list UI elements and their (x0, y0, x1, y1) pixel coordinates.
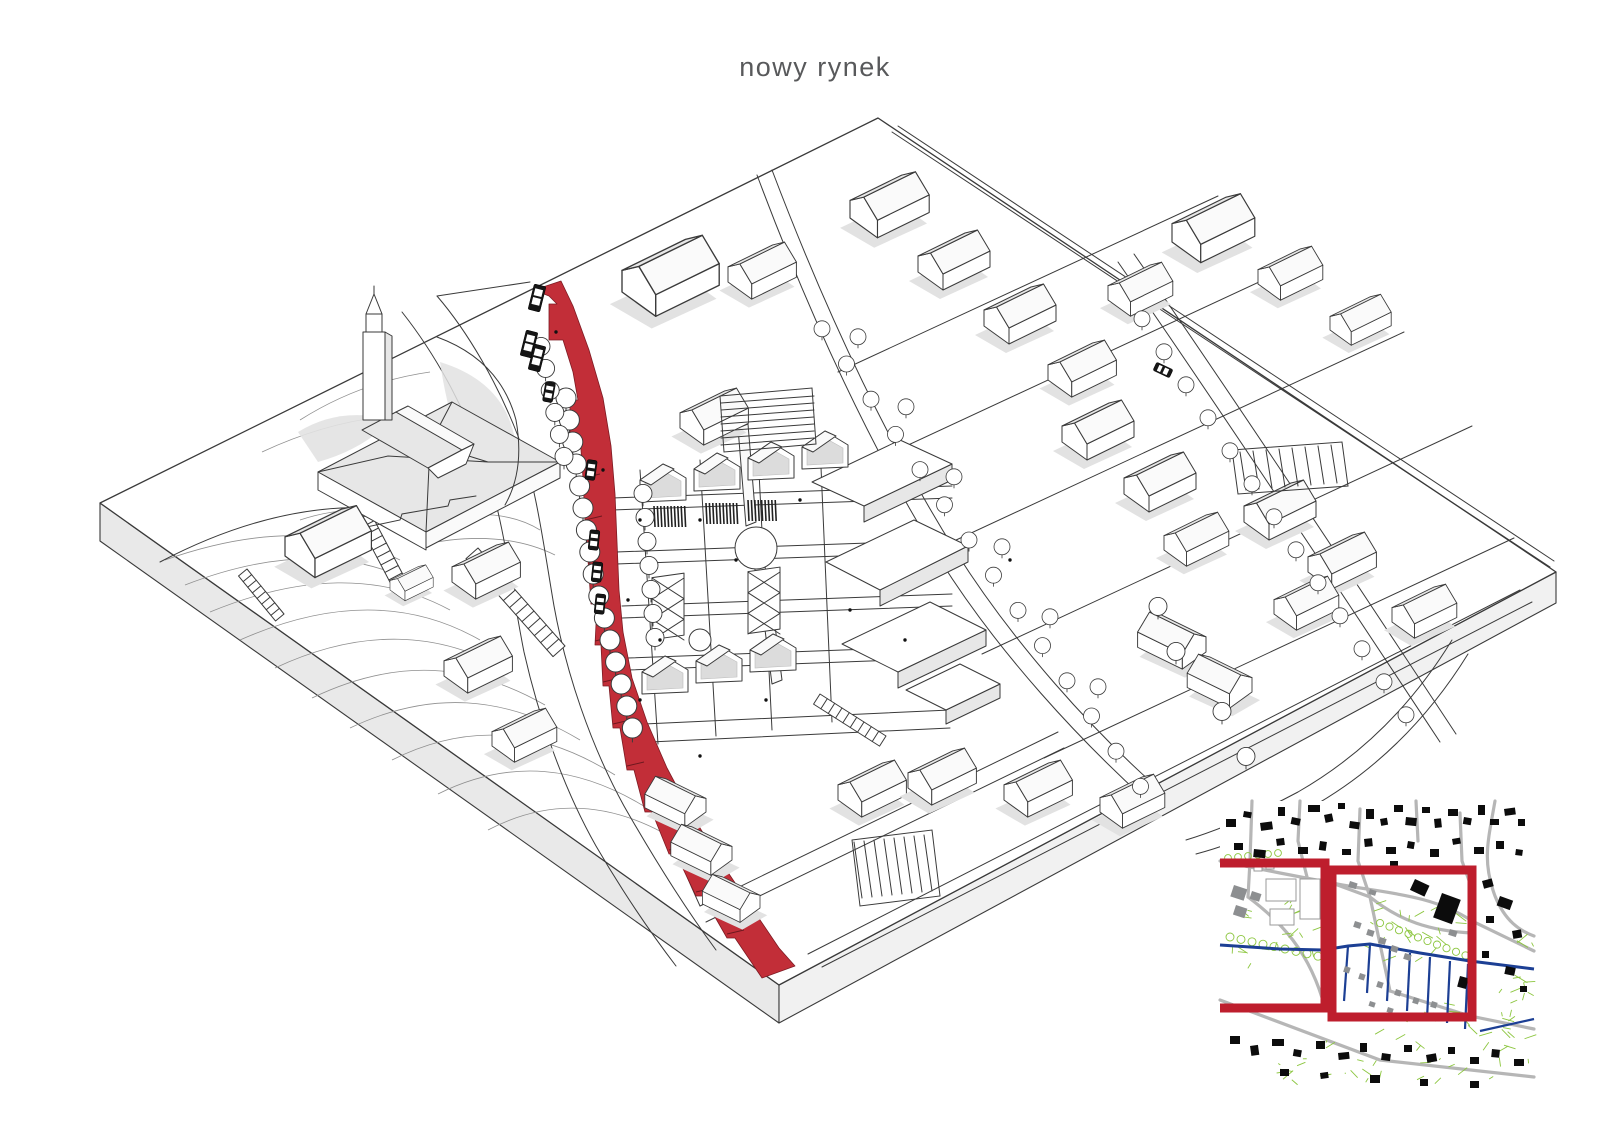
inset-location-map (1220, 801, 1536, 1091)
axonometric-drawing (0, 0, 1600, 1131)
church-spire (366, 294, 382, 314)
church-tower (363, 332, 385, 420)
presentation-board: nowy rynek (0, 0, 1600, 1131)
